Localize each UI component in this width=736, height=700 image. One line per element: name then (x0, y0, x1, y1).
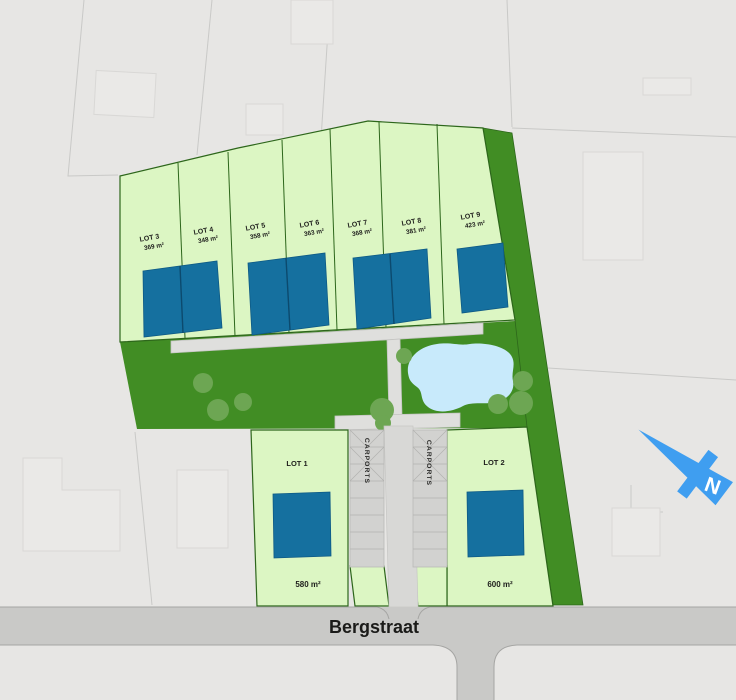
neighbor-building-outline (643, 78, 691, 95)
neighbor-building-outline (291, 0, 333, 44)
carports-left-label: CARPORTS (363, 438, 370, 484)
lot-2-label: LOT 2 (483, 458, 504, 467)
neighbor-building-outline (583, 152, 643, 260)
tree (207, 399, 229, 421)
street-name-label: Bergstraat (329, 617, 419, 637)
lot-1-rear-strip (350, 566, 389, 606)
lot-1-area-label: 580 m² (295, 580, 321, 589)
tree (513, 371, 533, 391)
house-lot-9 (457, 243, 508, 313)
house-lot-1 (273, 492, 331, 558)
site-plan: LOT 3 369 m² LOT 4 348 m² LOT 5 358 m² L… (0, 0, 736, 700)
lot-2-area-label: 600 m² (487, 580, 513, 589)
tree (193, 373, 213, 393)
neighbor-building-outline (246, 104, 283, 135)
neighbor-building-outline (177, 470, 228, 548)
tree (234, 393, 252, 411)
neighbor-building-outline (612, 508, 660, 556)
tree (396, 348, 412, 364)
tree (488, 394, 508, 414)
house-lot-2 (467, 490, 524, 557)
carports-right-label: CARPORTS (425, 440, 432, 486)
tree (509, 391, 533, 415)
lot-1-label: LOT 1 (286, 459, 307, 468)
neighbor-building-outline (94, 70, 156, 117)
